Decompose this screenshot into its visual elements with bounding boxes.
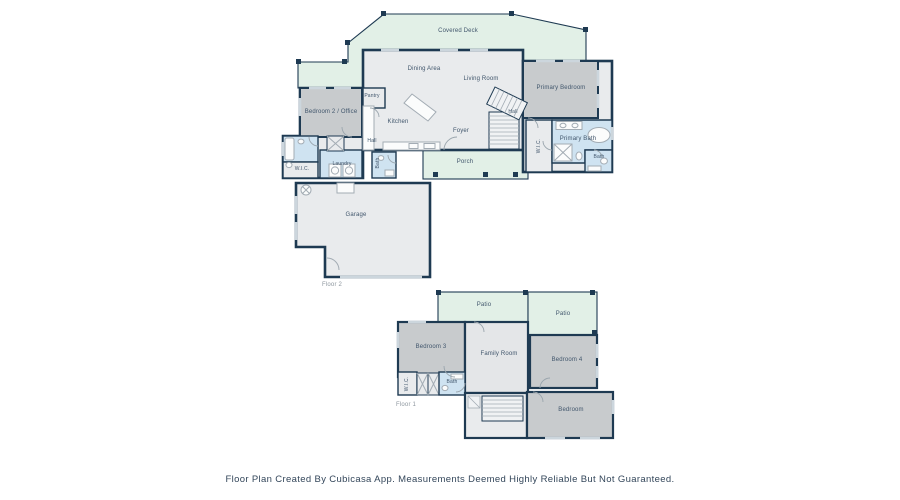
- kitchen-stove: [424, 144, 435, 149]
- room-shape-family-room: [465, 322, 528, 393]
- room-shape-pantry: [363, 88, 385, 108]
- room-shape-primary-bedroom: [523, 61, 598, 118]
- toilet: [378, 156, 384, 161]
- room-shape-porch: [423, 150, 528, 179]
- toilet: [601, 158, 608, 164]
- room-shape-bedroom3: [398, 322, 465, 377]
- room-shape-primary-wic: [526, 120, 552, 172]
- kitchen-sink: [409, 144, 418, 149]
- room-shape-bedroom4: [530, 335, 597, 388]
- toilet: [442, 385, 448, 390]
- sink: [298, 139, 304, 144]
- floor1-plan: [398, 290, 613, 438]
- room-shape-bedroom2-office: [300, 88, 362, 137]
- room-shape-wic-floor1: [398, 372, 417, 395]
- utility-box: [337, 183, 354, 193]
- vanity: [385, 170, 394, 176]
- floor2-caption: Floor 2: [322, 282, 342, 288]
- floor1-caption: Floor 1: [396, 402, 416, 408]
- vanity: [588, 166, 601, 171]
- room-shape-patio-left: [438, 292, 528, 322]
- bathtub: [285, 138, 294, 160]
- room-shape-patio-right: [528, 292, 597, 335]
- toilet: [576, 152, 582, 160]
- hall-closets-floor1: [417, 373, 439, 395]
- footer-disclaimer: Floor Plan Created By Cubicasa App. Meas…: [0, 474, 900, 485]
- floor-plan-drawing: [0, 0, 900, 500]
- room-shape-bedroom-lower: [527, 392, 613, 438]
- toilet: [286, 162, 292, 167]
- floor-plan-page: Covered Deck Dining Area Living Room Pri…: [0, 0, 900, 500]
- room-shape-garage: [296, 183, 430, 277]
- floor2-plan: [283, 11, 612, 277]
- hall-closet: [327, 136, 344, 151]
- bathtub: [588, 128, 610, 143]
